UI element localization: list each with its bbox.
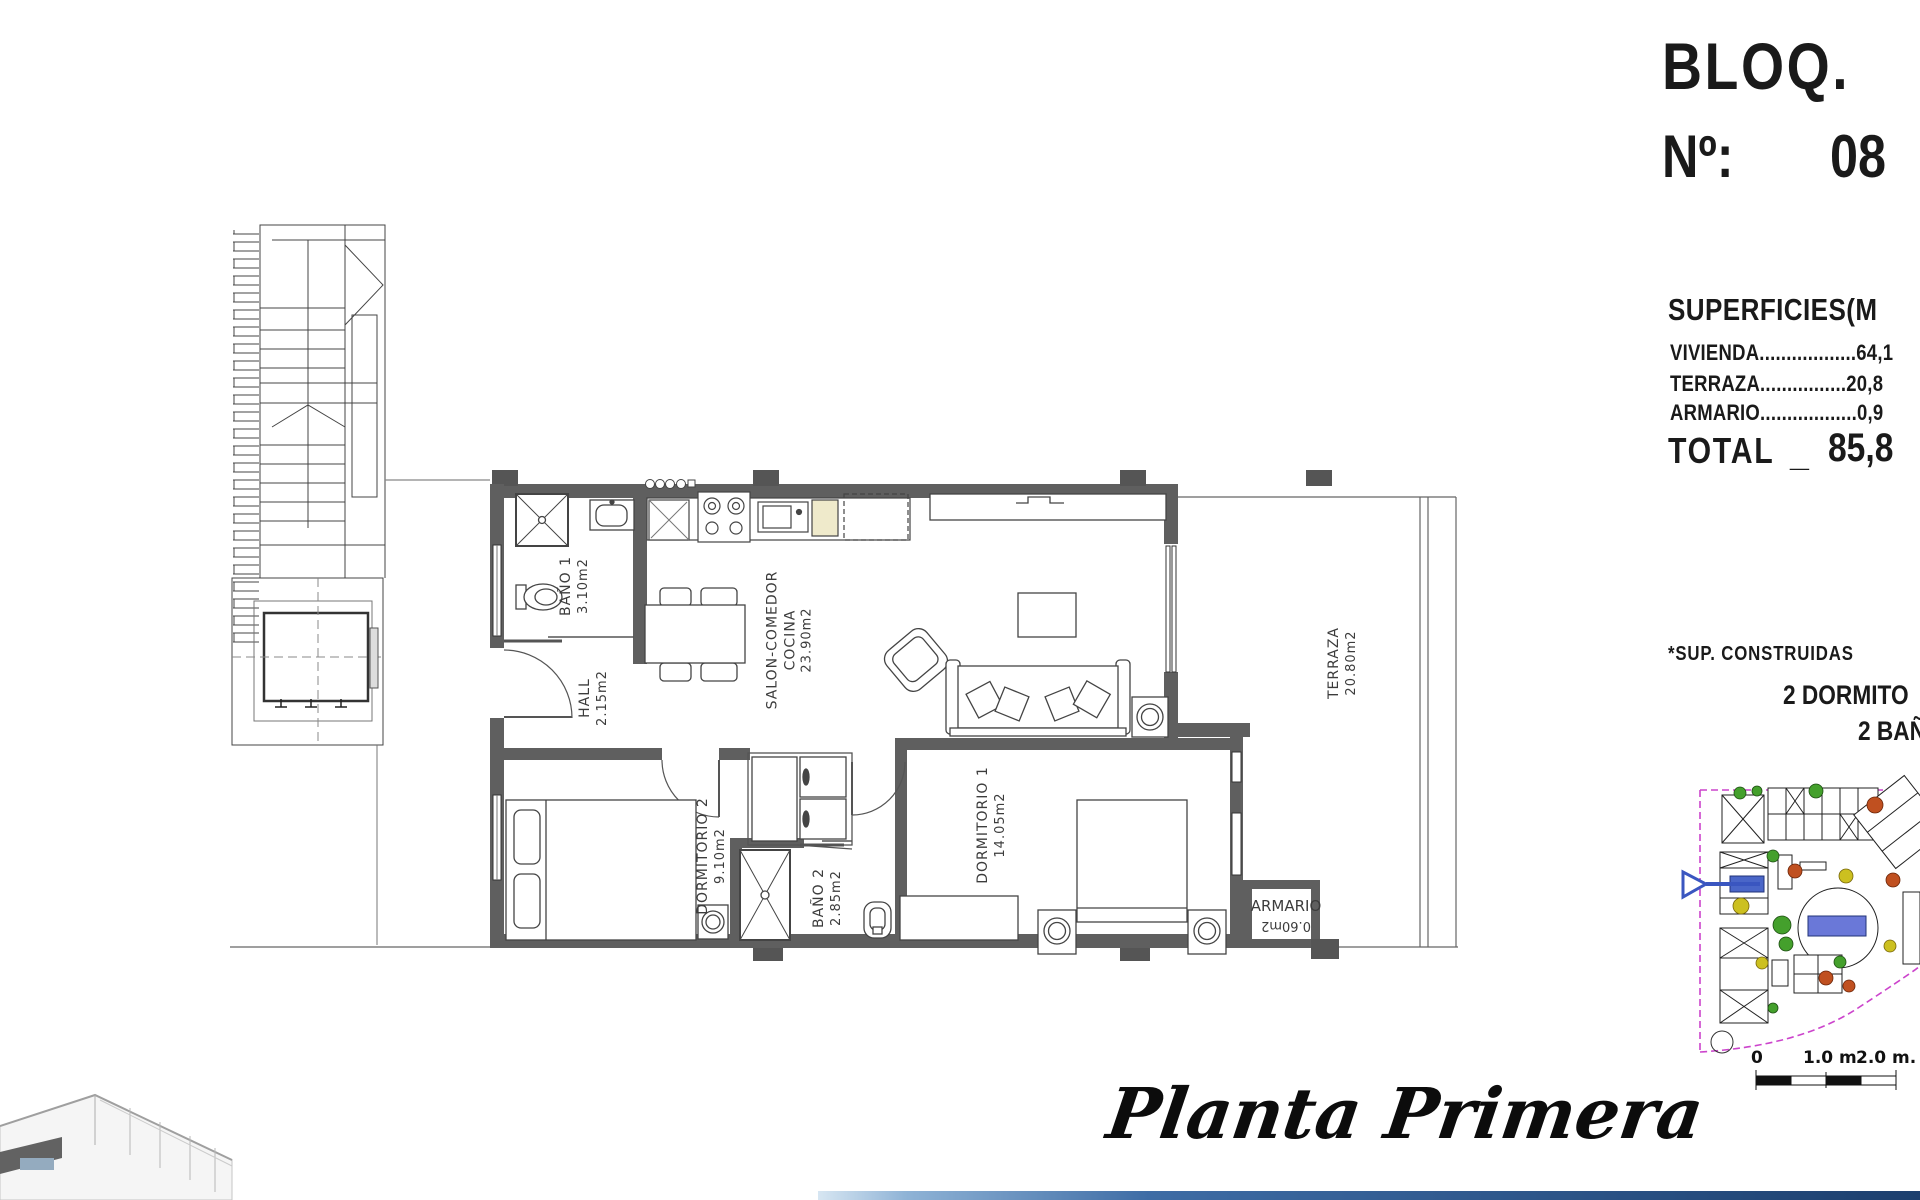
row-leader: ................	[1760, 371, 1846, 396]
label-terraza: TERRAZA 20.80m2	[1326, 627, 1360, 699]
superficies-row-terraza: TERRAZA................20,8	[1670, 371, 1920, 397]
superficies-heading-text: SUPERFICIES(M	[1668, 292, 1877, 328]
label-hall: HALL 2.15m2	[577, 670, 611, 726]
row-leader: ..................	[1760, 400, 1857, 425]
dormitorios-note: 2 DORMITO	[1783, 680, 1920, 711]
label-dormitorio2: DORMITORIO 2 9.10m2	[695, 797, 729, 915]
row-text: TERRAZA................20,8	[1670, 371, 1883, 397]
total-value: 85,8	[1828, 426, 1906, 471]
unit-number-label: Nº:	[1662, 122, 1747, 191]
row-label: TERRAZA	[1670, 371, 1760, 396]
building-render	[0, 1095, 232, 1200]
room-area: 23.90m2	[799, 571, 815, 710]
furniture-bedroom1	[900, 800, 1226, 954]
superficies-row-vivienda: VIVIENDA..................64,1	[1670, 340, 1920, 366]
scale-label-2m: 2.0 m.	[1856, 1048, 1916, 1068]
num-label-text: Nº:	[1662, 122, 1734, 191]
plan-drawing	[0, 0, 1920, 1200]
total-label: TOTAL	[1668, 430, 1795, 472]
floor-title-script: Planta Primera	[1102, 1072, 1654, 1155]
row-value: 64,1	[1856, 340, 1893, 365]
unit-number-value: 08	[1830, 122, 1897, 191]
scale-bar	[1756, 1070, 1896, 1090]
stair-core	[233, 225, 385, 645]
room-name: HALL	[577, 670, 595, 726]
room-name: ARMARIO	[1251, 897, 1322, 915]
bloq-text: BLOQ.	[1662, 28, 1850, 104]
total-separator: _	[1790, 436, 1809, 475]
row-value: 0,9	[1857, 400, 1883, 425]
room-area: 0.60m2	[1261, 918, 1311, 933]
total-value-text: 85,8	[1828, 426, 1893, 471]
banos-note: 2 BAÑ	[1858, 716, 1920, 747]
room-name: SALON-COMEDOR	[764, 571, 782, 710]
banos-text: 2 BAÑ	[1858, 716, 1920, 747]
block-title: BLOQ.	[1662, 28, 1886, 104]
scale-label-0: 0	[1751, 1048, 1763, 1068]
row-value: 20,8	[1846, 371, 1883, 396]
row-text: ARMARIO..................0,9	[1670, 400, 1883, 426]
superficies-heading: SUPERFICIES(M	[1668, 292, 1917, 328]
sup-construidas-note: *SUP. CONSTRUIDAS	[1668, 643, 1889, 666]
room-area: 14.05m2	[993, 766, 1009, 884]
label-bano2: BAÑO 2 2.85m2	[811, 868, 845, 928]
label-bano1: BAÑO 1 3.10m2	[558, 556, 592, 616]
num-value-text: 08	[1830, 122, 1886, 191]
room-name: DORMITORIO 2	[695, 797, 713, 915]
label-salon: SALON-COMEDOR COCINA 23.90m2	[764, 571, 815, 710]
sup-construidas-text: *SUP. CONSTRUIDAS	[1668, 643, 1854, 666]
label-dormitorio1: DORMITORIO 1 14.05m2	[975, 766, 1009, 884]
label-armario: ARMARIO	[1251, 897, 1322, 915]
room-name: TERRAZA	[1326, 627, 1344, 699]
room-name: BAÑO 2	[811, 868, 829, 928]
room-area: 2.15m2	[595, 670, 611, 726]
room-name-2: COCINA	[782, 571, 800, 710]
floorplan-page: BAÑO 1 3.10m2 HALL 2.15m2 SALON-COMEDOR …	[0, 0, 1920, 1200]
label-armario-area: 0.60m2	[1261, 915, 1311, 933]
row-label: ARMARIO	[1670, 400, 1760, 425]
room-area: 3.10m2	[576, 556, 592, 616]
room-name: BAÑO 1	[558, 556, 576, 616]
total-label-text: TOTAL	[1668, 430, 1774, 472]
row-leader: ..................	[1759, 340, 1856, 365]
room-area: 9.10m2	[713, 797, 729, 915]
room-name: DORMITORIO 1	[975, 766, 993, 884]
row-text: VIVIENDA..................64,1	[1670, 340, 1893, 366]
site-plan-map	[1683, 776, 1920, 1053]
row-label: VIVIENDA	[1670, 340, 1759, 365]
vent-circles	[646, 480, 696, 489]
dormitorios-text: 2 DORMITO	[1783, 680, 1909, 711]
bottom-accent-bar	[818, 1191, 1920, 1200]
superficies-row-armario: ARMARIO..................0,9	[1670, 400, 1920, 426]
room-area: 20.80m2	[1344, 627, 1360, 699]
room-area: 2.85m2	[829, 868, 845, 928]
scale-label-1m: 1.0 m.	[1803, 1048, 1863, 1068]
